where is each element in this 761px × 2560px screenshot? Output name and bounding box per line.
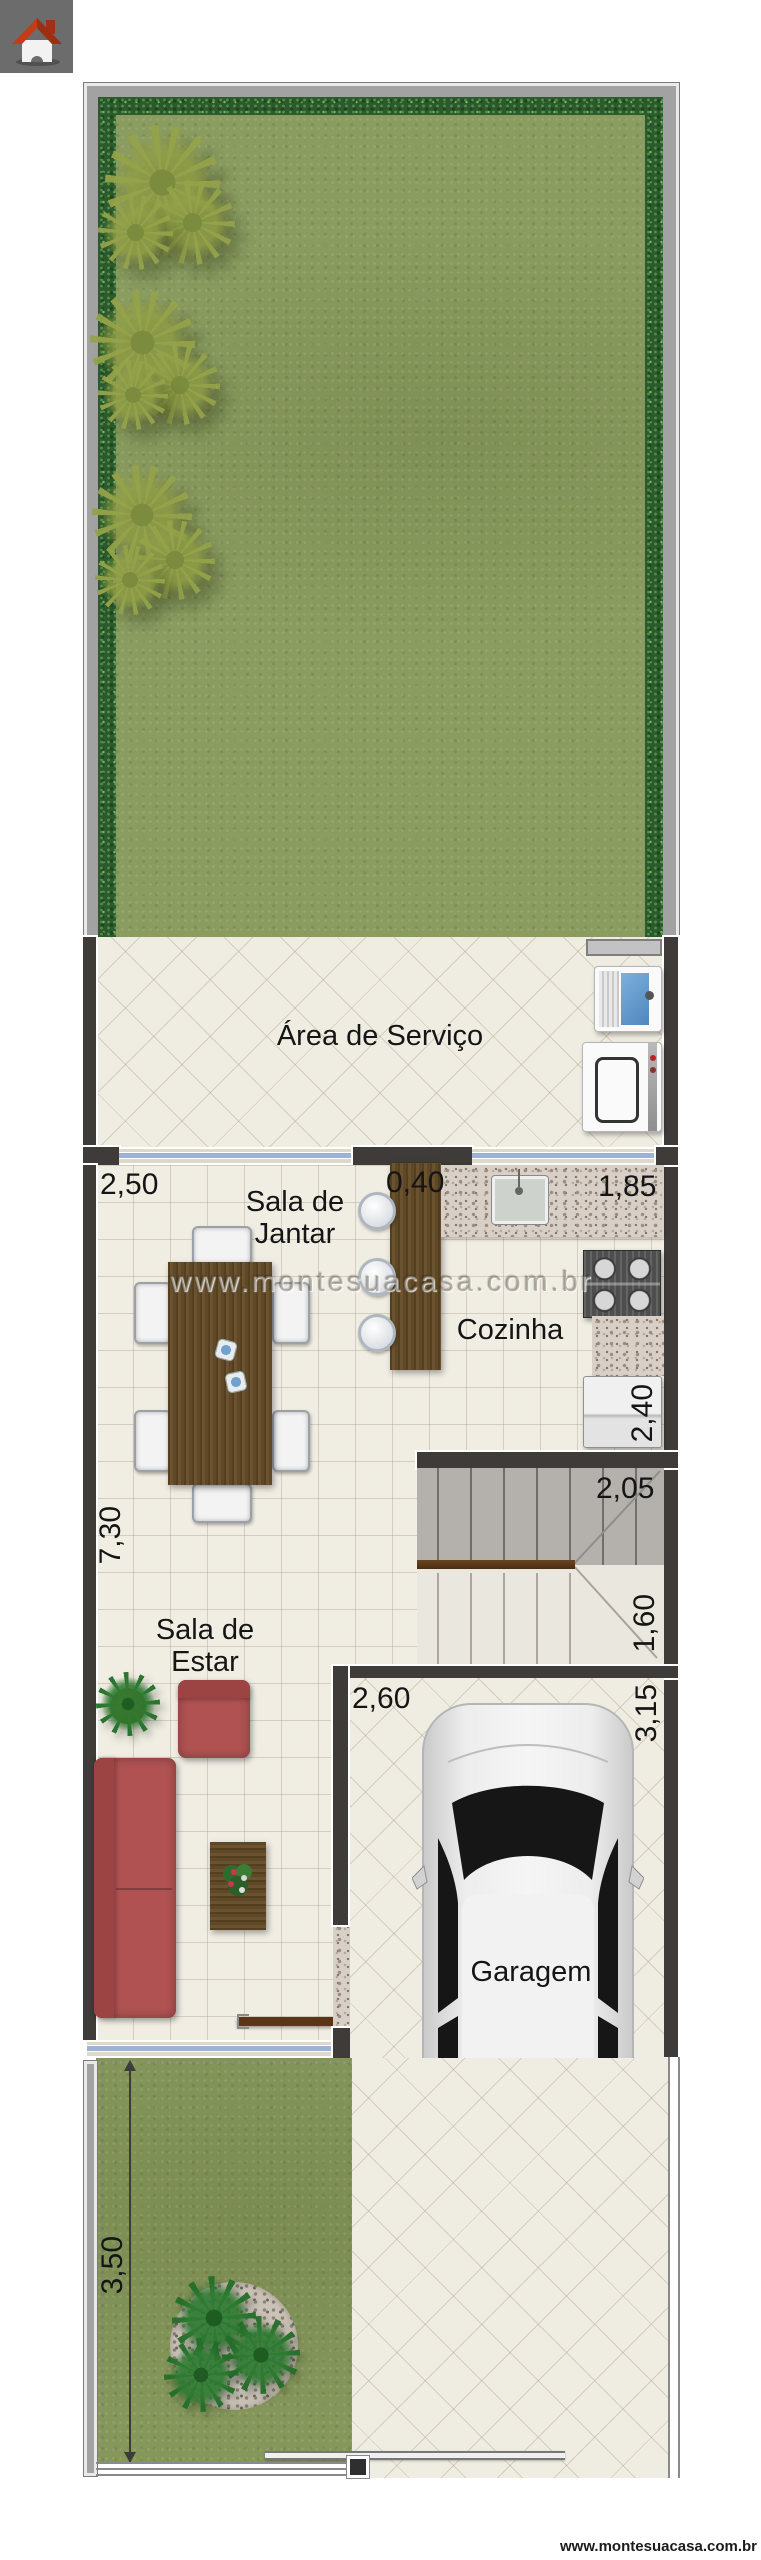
armchair xyxy=(178,1680,250,1758)
flower-centerpiece-icon xyxy=(218,1858,258,1904)
living-front-window-icon xyxy=(87,2042,331,2056)
kitchen-faucet-stem xyxy=(518,1169,520,1187)
driveway xyxy=(352,2058,668,2478)
dimension-front-yard-length: 3,50 xyxy=(96,2236,130,2294)
room-label-garagem: Garagem xyxy=(466,1956,596,1988)
entry-door-post xyxy=(333,2028,350,2058)
driveway-right-border xyxy=(668,2057,680,2478)
watermark-text: www.montesuacasa.com.br xyxy=(170,1266,594,1299)
right-house-wall xyxy=(664,937,678,2057)
garden-plant-icon xyxy=(164,2338,238,2412)
stove-icon xyxy=(583,1250,661,1318)
rear-wall-segment xyxy=(83,1147,119,1165)
dimension-garage-length: 3,15 xyxy=(630,1684,664,1742)
footer-site-url: www.montesuacasa.com.br xyxy=(560,2538,757,2555)
kitchen-sink-icon xyxy=(492,1176,548,1224)
entry-door-hinge xyxy=(237,2014,249,2029)
laundry-water xyxy=(621,973,649,1025)
dining-chair xyxy=(134,1282,172,1344)
sofa xyxy=(94,1758,176,2018)
front-fence xyxy=(96,2462,353,2476)
palm-tree-icon xyxy=(98,195,173,270)
dining-chair xyxy=(134,1410,172,1472)
laundry-faucet xyxy=(645,991,654,1000)
table-setting xyxy=(224,1370,248,1394)
dimension-kitchen-depth: 2,40 xyxy=(626,1384,660,1442)
room-label-cozinha: Cozinha xyxy=(440,1314,580,1346)
garage-left-wall xyxy=(333,1666,348,1925)
dimension-garage-width: 2,60 xyxy=(352,1682,410,1716)
bar-stool xyxy=(358,1314,396,1352)
kitchen-counter-right xyxy=(592,1316,664,1376)
garage-top-wall xyxy=(333,1666,678,1678)
stair-handrail xyxy=(417,1560,575,1569)
house-icon xyxy=(0,0,73,73)
room-label-area-de-servico: Área de Serviço xyxy=(96,1020,664,1052)
service-window-icon xyxy=(586,939,662,956)
sliding-gate xyxy=(265,2451,565,2460)
sliding-glass-door-icon xyxy=(119,1149,353,1163)
kitchen-faucet xyxy=(515,1187,523,1195)
washing-machine-door xyxy=(595,1057,639,1123)
dining-chair xyxy=(192,1483,252,1523)
washing-machine-icon xyxy=(582,1042,662,1132)
stairs-top-wall xyxy=(417,1452,678,1468)
dimension-stairs-width: 2,05 xyxy=(596,1472,654,1506)
dimension-dining-width: 2,50 xyxy=(100,1168,158,1202)
laundry-washboard xyxy=(599,971,619,1027)
rear-wall-segment xyxy=(656,1147,678,1165)
dimension-stairs-depth: 1,60 xyxy=(628,1594,662,1652)
palm-tree-icon xyxy=(95,545,165,615)
dimension-kitchen-width: 1,85 xyxy=(598,1170,656,1204)
backyard-hedge-right xyxy=(645,97,663,937)
washing-machine-knob xyxy=(650,1055,656,1061)
room-label-sala-de-estar: Sala de Estar xyxy=(145,1614,265,1679)
washing-machine-knob xyxy=(650,1067,656,1073)
backyard-hedge-top xyxy=(98,97,663,115)
palm-tree-icon xyxy=(98,360,168,430)
gate-post xyxy=(347,2456,369,2478)
floor-plan-page: Área de Serviço 2,50 Sala de Jantar 0,40… xyxy=(0,0,761,2560)
room-label-sala-de-jantar: Sala de Jantar xyxy=(230,1186,360,1251)
service-area-left-wall xyxy=(83,937,96,1167)
dining-chair xyxy=(272,1410,310,1472)
dimension-arrow-up-icon xyxy=(124,2060,136,2071)
dimension-living-length: 7,30 xyxy=(94,1506,128,1564)
potted-plant-icon xyxy=(96,1672,160,1736)
dimension-bar-width: 0,40 xyxy=(386,1166,444,1200)
kitchen-window-icon xyxy=(472,1149,656,1163)
